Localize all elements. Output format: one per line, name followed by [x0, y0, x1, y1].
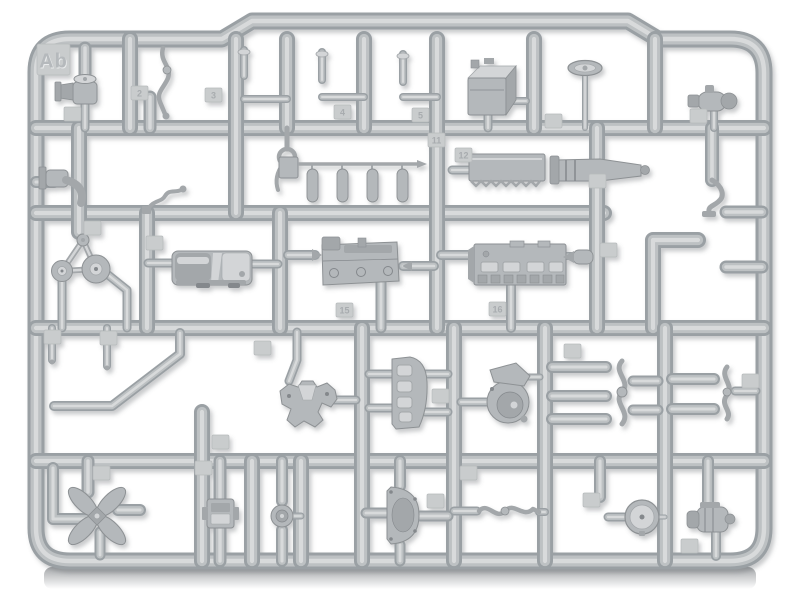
part-number-tag — [460, 466, 477, 480]
part-number-tag: 2 — [131, 86, 148, 100]
part-engine-block — [312, 237, 412, 285]
part-number-tag — [589, 174, 606, 188]
part-number-tag — [195, 461, 212, 475]
part-fuel-rail — [279, 157, 427, 202]
part-number-tag — [93, 466, 110, 480]
part-truck-cab — [172, 251, 252, 288]
part-bell-housing — [487, 363, 530, 423]
part-belt-pulleys — [52, 234, 111, 283]
part-number-tag: 15 — [336, 303, 353, 317]
part-number-tag: 5 — [412, 108, 429, 122]
part-compressor-cylinder — [688, 85, 737, 111]
part-number-tag: 12 — [455, 148, 472, 162]
part-number-tag: 3 — [205, 88, 222, 102]
sprue-photo: 234511121516 AbAb — [0, 0, 800, 593]
sprue-letter-label: AbAb — [37, 44, 70, 75]
part-idler-disc — [625, 500, 659, 536]
part-steering-wheel — [568, 61, 602, 76]
part-engine-mount-bracket — [280, 381, 337, 427]
cast-shadow — [44, 567, 756, 589]
part-gear-lever — [159, 48, 171, 120]
svg-text:2: 2 — [137, 89, 142, 99]
part-number-tag: 4 — [334, 105, 351, 119]
part-number-tag — [690, 109, 707, 123]
part-holes-block — [392, 357, 427, 429]
part-torsion-linkage-left — [617, 361, 627, 424]
part-number-tag — [742, 374, 759, 388]
part-radiator-panel — [468, 241, 566, 285]
svg-text:5: 5 — [418, 111, 423, 121]
part-number-tag — [432, 389, 449, 403]
part-number-tag — [583, 493, 600, 507]
part-number-tag: 11 — [428, 133, 445, 147]
part-grommet-hub — [271, 505, 293, 527]
part-number-tag — [564, 344, 581, 358]
svg-text:16: 16 — [492, 305, 502, 315]
part-saw-tooth-block — [469, 154, 545, 186]
part-torsion-linkage-right — [723, 367, 731, 419]
part-number-tag: 16 — [489, 302, 506, 316]
part-number-tag — [100, 331, 117, 345]
part-starter-motor — [687, 502, 735, 532]
sprue-runners — [36, 39, 764, 561]
svg-text:11: 11 — [432, 136, 442, 146]
part-air-filter-box — [468, 58, 516, 115]
sprue-letter-text: Ab — [39, 51, 68, 73]
part-valve-fitting — [55, 75, 97, 105]
part-pump-box — [202, 499, 239, 528]
part-wavy-link — [479, 507, 539, 515]
part-number-tag — [254, 341, 271, 355]
svg-text:15: 15 — [339, 306, 349, 316]
photo-canvas: 234511121516 AbAb — [0, 0, 800, 593]
svg-text:12: 12 — [458, 151, 468, 161]
part-number-tag — [64, 107, 81, 121]
part-number-tag — [600, 243, 617, 257]
part-number-tag — [44, 330, 61, 344]
part-number-tag — [545, 114, 562, 128]
sprue-assembly: 234511121516 AbAb — [36, 21, 764, 561]
part-number-tag — [681, 539, 698, 553]
svg-text:4: 4 — [340, 108, 345, 118]
svg-text:3: 3 — [211, 91, 216, 101]
part-number-tag — [427, 494, 444, 508]
part-number-tag — [84, 221, 101, 235]
part-number-tag — [212, 435, 229, 449]
part-diff-cover — [387, 487, 419, 544]
part-pin-tips — [50, 360, 110, 371]
part-number-tag — [146, 236, 163, 250]
